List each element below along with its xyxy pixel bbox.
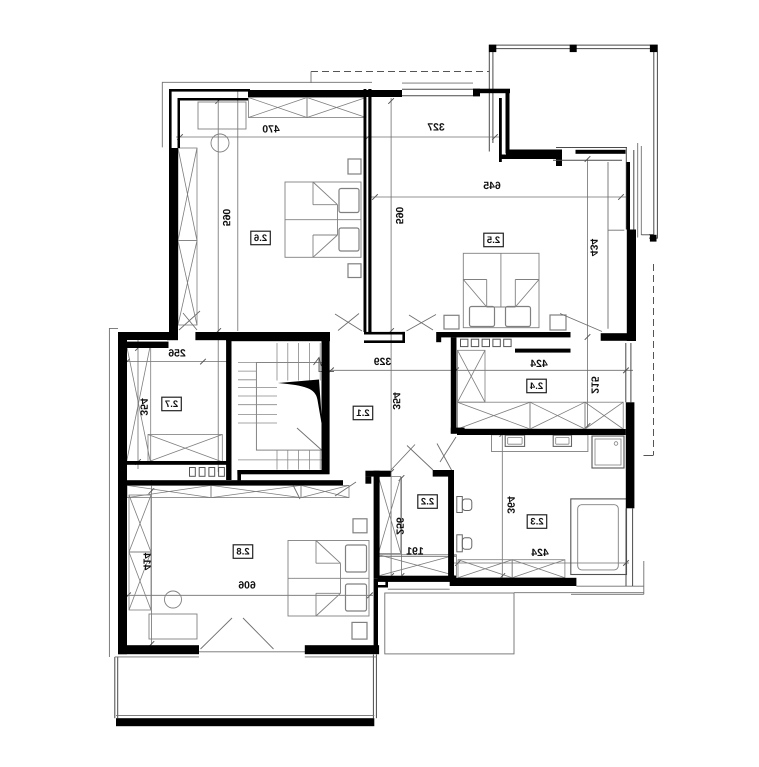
- svg-text:414: 414: [141, 553, 153, 571]
- svg-text:645: 645: [483, 180, 501, 192]
- svg-text:590: 590: [393, 207, 405, 225]
- svg-text:191: 191: [406, 546, 424, 558]
- svg-text:215: 215: [589, 376, 601, 394]
- svg-text:470: 470: [262, 124, 280, 136]
- svg-text:2.2: 2.2: [421, 496, 434, 507]
- svg-text:2.8: 2.8: [236, 546, 249, 557]
- svg-text:354: 354: [390, 392, 402, 410]
- svg-text:329: 329: [374, 356, 392, 368]
- svg-text:256: 256: [394, 517, 406, 535]
- svg-text:354: 354: [138, 398, 150, 416]
- svg-text:424: 424: [531, 547, 549, 559]
- svg-text:434: 434: [588, 239, 600, 257]
- svg-text:2.1: 2.1: [356, 408, 370, 419]
- svg-text:2.7: 2.7: [165, 399, 178, 410]
- svg-text:256: 256: [168, 348, 186, 360]
- svg-text:424: 424: [530, 358, 548, 370]
- svg-text:327: 327: [427, 122, 445, 134]
- svg-text:590: 590: [220, 209, 232, 227]
- svg-text:2.3: 2.3: [530, 516, 543, 527]
- svg-text:2.6: 2.6: [254, 233, 267, 244]
- svg-text:2.5: 2.5: [486, 235, 500, 246]
- svg-text:606: 606: [238, 580, 256, 592]
- svg-text:2.4: 2.4: [529, 381, 543, 392]
- svg-text:364: 364: [505, 496, 517, 514]
